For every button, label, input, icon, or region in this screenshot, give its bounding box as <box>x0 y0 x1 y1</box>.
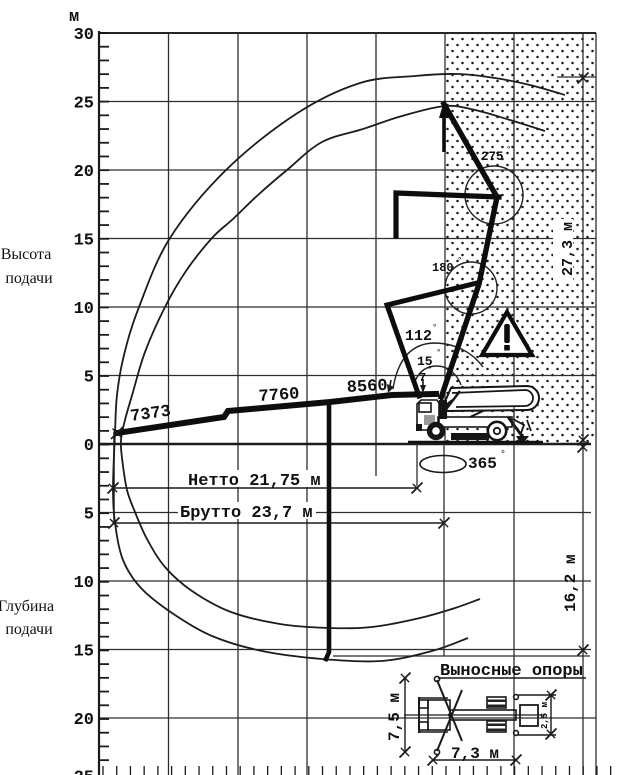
svg-text:275: 275 <box>481 150 504 164</box>
svg-text:20: 20 <box>74 163 94 182</box>
svg-text:10: 10 <box>74 300 94 319</box>
svg-text:5: 5 <box>84 369 94 388</box>
svg-text:0: 0 <box>84 437 94 456</box>
svg-text:180: 180 <box>432 261 454 275</box>
svg-text:подачи: подачи <box>5 270 53 287</box>
svg-text:°: ° <box>432 323 437 333</box>
svg-text:7,3 м: 7,3 м <box>451 745 499 763</box>
svg-text:2,5 м: 2,5 м <box>540 702 550 729</box>
svg-text:15: 15 <box>74 643 94 662</box>
svg-text:°: ° <box>436 348 441 358</box>
svg-text:16,2 м: 16,2 м <box>562 554 580 612</box>
svg-text:20: 20 <box>74 711 94 730</box>
svg-text:7760: 7760 <box>258 385 300 407</box>
svg-text:8560: 8560 <box>346 377 388 398</box>
svg-text:Высота: Высота <box>1 246 52 263</box>
svg-text:°: ° <box>427 365 432 375</box>
svg-text:7: 7 <box>419 371 426 385</box>
svg-text:5: 5 <box>84 506 94 525</box>
svg-text:10: 10 <box>74 574 94 593</box>
svg-text:°: ° <box>500 449 506 461</box>
svg-text:Нетто 21,75 м: Нетто 21,75 м <box>188 472 321 491</box>
svg-text:7,5 м: 7,5 м <box>386 693 404 741</box>
svg-text:м: м <box>69 8 79 27</box>
svg-text:подачи: подачи <box>5 621 53 638</box>
svg-text:15: 15 <box>74 232 94 251</box>
svg-text:365: 365 <box>468 455 497 473</box>
svg-text:Глубина: Глубина <box>0 598 54 615</box>
svg-text:27,3 м: 27,3 м <box>560 222 577 276</box>
svg-text:Брутто 23,7 м: Брутто 23,7 м <box>180 504 313 523</box>
svg-text:25: 25 <box>74 769 94 775</box>
svg-text:°: ° <box>457 256 462 266</box>
svg-text:112: 112 <box>405 328 432 345</box>
svg-text:30: 30 <box>74 26 94 45</box>
svg-text:25: 25 <box>74 95 94 114</box>
svg-text:°: ° <box>506 145 511 155</box>
